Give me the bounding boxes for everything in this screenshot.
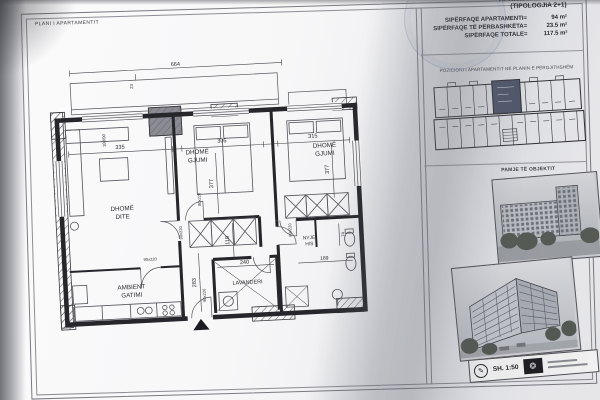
svg-text:NYJE: NYJE	[303, 235, 316, 242]
dimension-labels: 664 23 335 305 315 377 377 119 283 240 1…	[98, 54, 348, 292]
svg-text:315: 315	[308, 133, 318, 139]
svg-text:240: 240	[240, 260, 250, 266]
svg-text:LAVANDERI: LAVANDERI	[232, 279, 263, 287]
svg-text:80x220: 80x220	[196, 192, 202, 206]
svg-text:GATIMI: GATIMI	[121, 292, 143, 300]
svg-text:DHOMË: DHOMË	[313, 141, 337, 150]
svg-text:DHOMË: DHOMË	[185, 147, 209, 156]
svg-text:AMBIENT: AMBIENT	[117, 283, 145, 291]
svg-text:180/90: 180/90	[101, 133, 107, 147]
highlighted-apartment	[492, 79, 522, 114]
svg-text:90x220: 90x220	[143, 256, 157, 262]
svg-text:GJUMI: GJUMI	[315, 150, 335, 158]
scale-label: SH. 1:50	[493, 364, 519, 373]
area-value: 117.5 m²	[531, 29, 567, 38]
svg-text:GJUMI: GJUMI	[188, 156, 208, 164]
firm-text	[547, 358, 587, 369]
svg-text:305: 305	[217, 138, 227, 144]
svg-text:335: 335	[115, 145, 125, 151]
pen-icon: ✎	[473, 363, 488, 378]
svg-text:DHOMË: DHOMË	[110, 204, 134, 213]
svg-text:189: 189	[320, 255, 329, 261]
exterior-walls	[52, 101, 370, 330]
firm-logo-icon: ❂	[523, 358, 543, 375]
svg-text:80x220: 80x220	[287, 223, 293, 237]
paper-sheet: PLANI I APARTAMENTIT APARTAMENT A-21 (TI…	[0, 0, 600, 400]
svg-text:80x220: 80x220	[178, 225, 184, 239]
svg-text:377: 377	[209, 179, 215, 189]
firm-text-line	[547, 359, 577, 364]
svg-text:377: 377	[325, 165, 331, 175]
svg-text:664: 664	[171, 62, 181, 68]
svg-text:90x220: 90x220	[201, 288, 207, 302]
floor-plan: 664 23 335 305 315 377 377 119 283 240 1…	[38, 41, 407, 355]
svg-text:23: 23	[129, 83, 134, 89]
svg-text:283: 283	[192, 278, 198, 288]
firm-text-line	[547, 363, 587, 369]
key-plan	[427, 71, 589, 155]
interior-walls	[62, 105, 366, 324]
photographed-drawing: PLANI I APARTAMENTIT APARTAMENT A-21 (TI…	[0, 0, 600, 400]
svg-text:DITE: DITE	[115, 213, 130, 221]
svg-text:H/S: H/S	[305, 241, 314, 247]
building-perspective-photo	[451, 256, 582, 361]
bathroom-fixtures	[282, 229, 358, 309]
svg-text:74: 74	[340, 231, 345, 237]
svg-text:119: 119	[225, 236, 231, 245]
building-elevation-photo	[491, 171, 600, 265]
